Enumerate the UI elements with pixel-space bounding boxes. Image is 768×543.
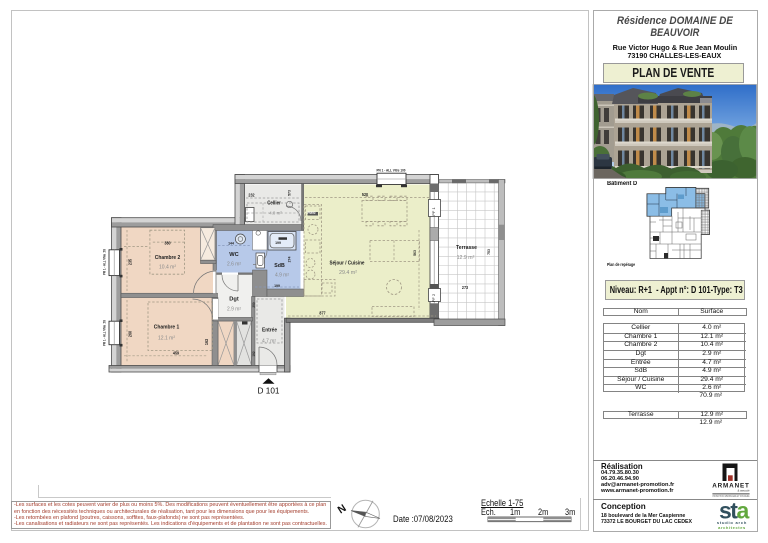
svg-text:29.4 m²: 29.4 m² — [339, 270, 357, 276]
svg-text:SdB: SdB — [274, 263, 285, 269]
svg-text:2.9 m²: 2.9 m² — [227, 306, 241, 312]
svg-text:10.4 m²: 10.4 m² — [159, 264, 176, 270]
svg-text:563: 563 — [412, 249, 417, 255]
svg-text:753: 753 — [486, 248, 491, 254]
svg-text:Séjour / Cuisine: Séjour / Cuisine — [330, 260, 366, 266]
svg-text:274: 274 — [287, 256, 292, 262]
svg-text:199: 199 — [275, 240, 281, 245]
svg-text:4.9 m²: 4.9 m² — [275, 273, 289, 279]
svg-text:Terrasse: Terrasse — [456, 245, 478, 251]
svg-text:PM 1 - ALL VMa :03: PM 1 - ALL VMa :03 — [103, 320, 107, 346]
svg-text:199: 199 — [274, 283, 280, 288]
svg-text:PM90: PM90 — [308, 211, 316, 215]
svg-text:877: 877 — [319, 311, 326, 316]
svg-text:12.1 m²: 12.1 m² — [158, 335, 175, 341]
svg-text:4.7 m²: 4.7 m² — [262, 338, 276, 344]
svg-text:PF 2: PF 2 — [431, 293, 436, 302]
svg-text:573: 573 — [287, 189, 292, 195]
svg-text:260: 260 — [128, 330, 133, 337]
svg-text:Chambre 2: Chambre 2 — [155, 255, 180, 261]
svg-text:235: 235 — [128, 258, 133, 265]
svg-text:Cellier: Cellier — [267, 200, 281, 206]
svg-text:PF 1: PF 1 — [431, 207, 436, 216]
svg-text:380: 380 — [164, 240, 171, 245]
svg-text:250: 250 — [252, 302, 256, 307]
svg-text:N: N — [336, 502, 349, 516]
svg-text:520: 520 — [362, 192, 369, 197]
svg-text:Dgt: Dgt — [229, 296, 239, 302]
svg-text:192: 192 — [252, 351, 256, 356]
svg-text:WC: WC — [229, 252, 239, 258]
svg-text:Entrée: Entrée — [262, 327, 278, 333]
svg-text:232: 232 — [248, 192, 255, 197]
svg-text:2.6 m²: 2.6 m² — [227, 261, 241, 267]
svg-text:12.9 m²: 12.9 m² — [457, 255, 475, 261]
svg-text:4.0 m²: 4.0 m² — [269, 211, 282, 217]
svg-text:144: 144 — [228, 240, 234, 245]
svg-text:D 101: D 101 — [258, 385, 280, 395]
svg-text:163: 163 — [204, 338, 209, 345]
svg-text:Chambre 1: Chambre 1 — [154, 325, 180, 331]
svg-text:PN 1 - ALL Vitre 100: PN 1 - ALL Vitre 100 — [377, 168, 406, 172]
svg-text:459: 459 — [173, 350, 180, 355]
svg-text:273: 273 — [462, 285, 469, 290]
svg-text:PM 1 - ALL VMa :03: PM 1 - ALL VMa :03 — [103, 249, 107, 275]
